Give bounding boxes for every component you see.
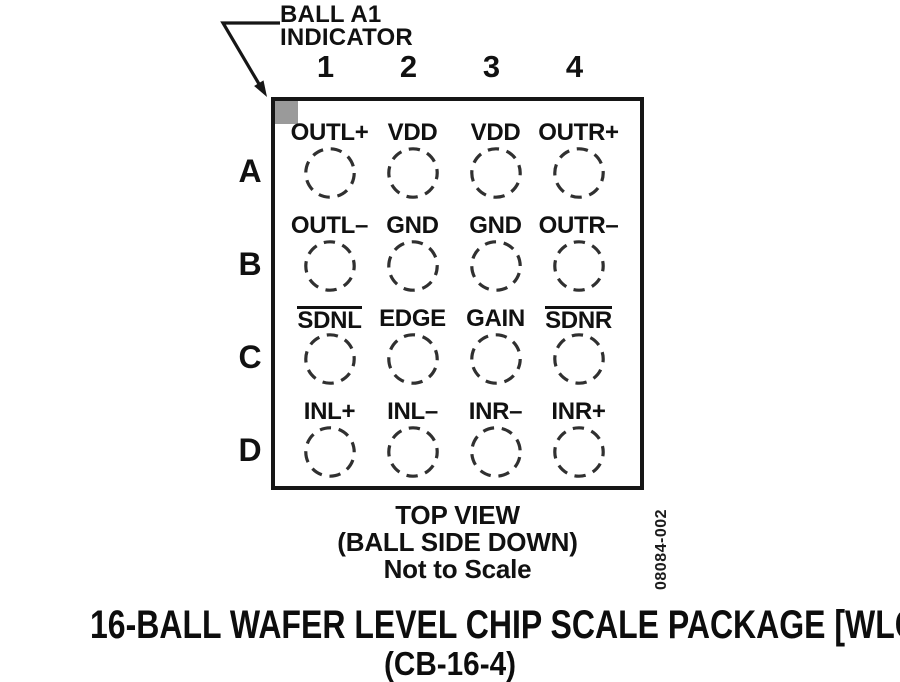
figure-number: 08084-002: [653, 509, 671, 590]
ball-a3-circle: [469, 146, 523, 200]
ball-b4-circle: [552, 239, 606, 293]
pin-c3: GAIN: [454, 306, 537, 399]
pin-d2-label: INL–: [387, 399, 438, 425]
pin-d1-label: INL+: [304, 399, 355, 425]
view-note: TOP VIEW (BALL SIDE DOWN) Not to Scale: [271, 502, 644, 583]
row-label-c: C: [231, 340, 269, 374]
ball-c4-circle: [552, 332, 606, 386]
pin-c1: SDNL: [288, 306, 371, 399]
pin-a2-label: VDD: [388, 120, 438, 146]
caption: 16-BALL WAFER LEVEL CHIP SCALE PACKAGE […: [0, 605, 900, 682]
pin-c2: EDGE: [371, 306, 454, 399]
pin-b2-label: GND: [386, 213, 438, 239]
pin-d1: INL+: [288, 399, 371, 492]
ball-a2-circle: [386, 146, 440, 200]
pin-a3-label: VDD: [471, 120, 521, 146]
pin-d3-label: INR–: [469, 399, 522, 425]
pin-a4: OUTR+: [537, 120, 620, 213]
row-label-d: D: [231, 433, 269, 467]
column-headers: 1 2 3 4: [284, 50, 616, 84]
pin-a1-label: OUTL+: [291, 120, 369, 146]
caption-title: 16-BALL WAFER LEVEL CHIP SCALE PACKAGE […: [90, 605, 810, 646]
pin-a4-label: OUTR+: [538, 120, 619, 146]
ball-b2-circle: [386, 239, 440, 293]
pin-d2: INL–: [371, 399, 454, 492]
view-note-line1: TOP VIEW: [271, 502, 644, 529]
row-label-b: B: [231, 247, 269, 281]
pin-b2: GND: [371, 213, 454, 306]
column-header-2: 2: [367, 50, 450, 84]
pin-a1: OUTL+: [288, 120, 371, 213]
pin-c1-label: SDNL: [297, 306, 361, 332]
pin-c3-label: GAIN: [466, 306, 525, 332]
ball-d3-circle: [469, 425, 523, 479]
ball-d4-circle: [552, 425, 606, 479]
pin-a3: VDD: [454, 120, 537, 213]
pin-b1-label: OUTL–: [291, 213, 368, 239]
ball-b3-circle: [469, 239, 523, 293]
ball-c3-circle: [469, 332, 523, 386]
package-outline: OUTL+ VDD VDD OUTR+ OUTL– GND: [271, 97, 644, 490]
pin-d3: INR–: [454, 399, 537, 492]
pin-b4-label: OUTR–: [539, 213, 619, 239]
pin-d4-label: INR+: [551, 399, 605, 425]
view-note-line2: (BALL SIDE DOWN): [271, 529, 644, 556]
pin-c2-label: EDGE: [379, 306, 446, 332]
pin-b3-label: GND: [469, 213, 521, 239]
pin-b1: OUTL–: [288, 213, 371, 306]
ball-b1-circle: [303, 239, 357, 293]
pin-d4: INR+: [537, 399, 620, 492]
ball-c1-circle: [303, 332, 357, 386]
row-label-a: A: [231, 154, 269, 188]
view-note-line3: Not to Scale: [271, 556, 644, 583]
column-header-3: 3: [450, 50, 533, 84]
column-header-4: 4: [533, 50, 616, 84]
pin-b4: OUTR–: [537, 213, 620, 306]
pin-c4-label: SDNR: [545, 306, 612, 332]
ball-d2-circle: [386, 425, 440, 479]
ball-a1-circle: [303, 146, 357, 200]
ball-grid: OUTL+ VDD VDD OUTR+ OUTL– GND: [275, 101, 640, 486]
caption-package-code: (CB-16-4): [45, 646, 855, 682]
column-header-1: 1: [284, 50, 367, 84]
pin-c4: SDNR: [537, 306, 620, 399]
pin-a2: VDD: [371, 120, 454, 213]
ball-a4-circle: [552, 146, 606, 200]
wlcsp-pin-diagram: BALL A1 INDICATOR 1 2 3 4 A B C D OUTL+ …: [0, 0, 900, 682]
pin-b3: GND: [454, 213, 537, 306]
ball-c2-circle: [386, 332, 440, 386]
ball-d1-circle: [303, 425, 357, 479]
